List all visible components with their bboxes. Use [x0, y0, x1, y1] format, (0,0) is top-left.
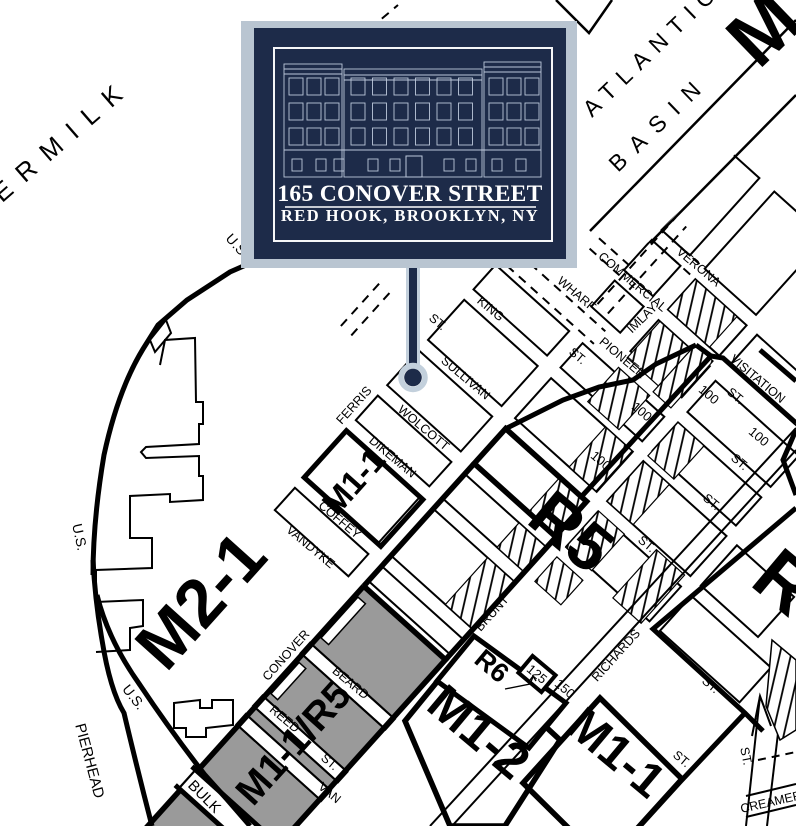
svg-text:165 CONOVER STREET: 165 CONOVER STREET — [277, 181, 542, 207]
svg-text:RED HOOK, BROOKLYN, NY: RED HOOK, BROOKLYN, NY — [281, 206, 539, 225]
